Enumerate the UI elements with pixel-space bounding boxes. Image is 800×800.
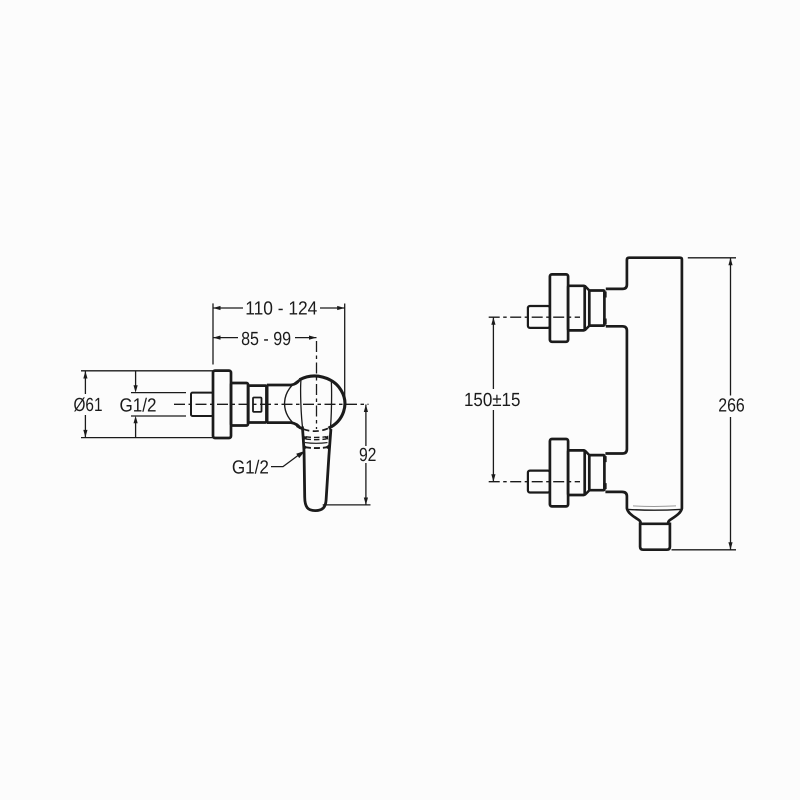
svg-text:Ø61: Ø61: [74, 395, 103, 416]
svg-text:150±15: 150±15: [464, 390, 521, 411]
svg-text:110 - 124: 110 - 124: [245, 299, 317, 320]
svg-text:G1/2: G1/2: [120, 395, 157, 416]
svg-text:92: 92: [359, 445, 377, 466]
svg-text:85 - 99: 85 - 99: [241, 329, 291, 350]
svg-text:G1/2: G1/2: [232, 458, 269, 479]
svg-text:266: 266: [718, 395, 745, 416]
